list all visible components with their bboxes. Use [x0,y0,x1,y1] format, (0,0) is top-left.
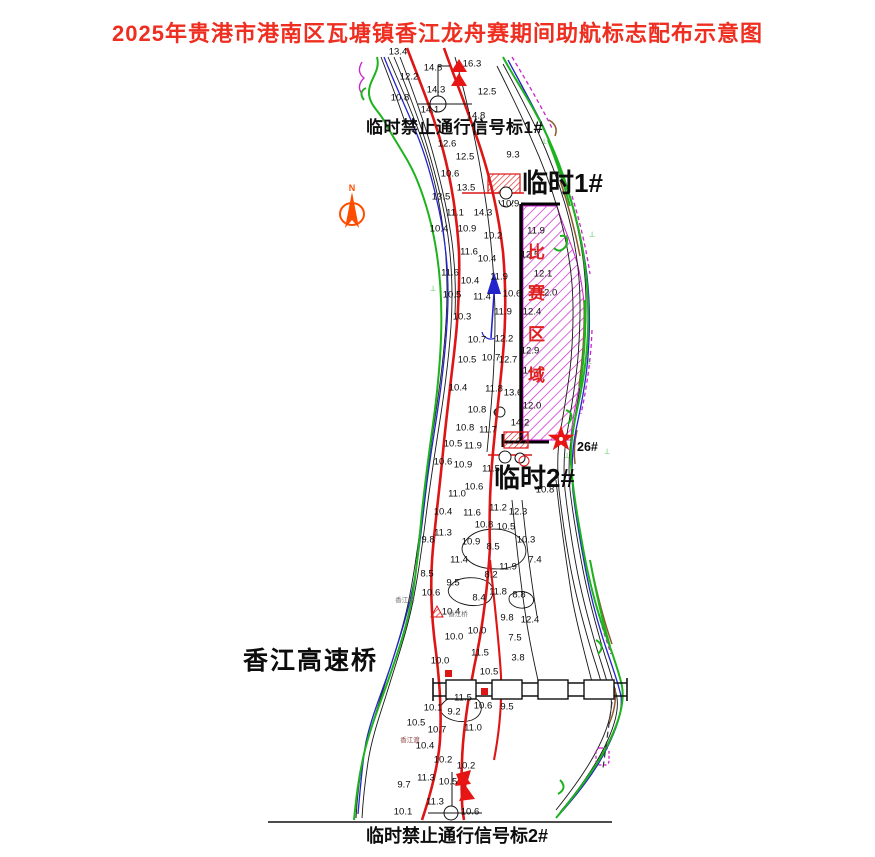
depth-sounding: 3.8 [511,653,524,663]
depth-sounding: 14.3 [427,85,446,95]
depth-sounding: 11.8 [485,384,503,394]
depth-sounding: 10.4 [434,507,453,517]
depth-sounding: 10.6 [461,807,480,817]
depth-sounding: 10.9 [501,199,520,209]
depth-sounding: 10.3 [453,312,472,322]
label-race-area: 比赛区域 [526,243,543,407]
place-label: 香江渡 [400,738,420,745]
depth-sounding: 12.7 [499,355,518,365]
depth-sounding: 10.2 [484,231,503,241]
depth-sounding: 10.9 [462,537,481,547]
depth-sounding: 12.2 [495,334,514,344]
depth-sounding: 10.3 [517,535,536,545]
depth-sounding: 10.6 [441,169,460,179]
depth-sounding: 10.0 [445,632,464,642]
depth-sounding: 10.4 [478,254,497,264]
depth-sounding: 10.1 [394,807,413,817]
depth-sounding: 10.6 [434,457,453,467]
depth-sounding: 13.4 [389,47,408,57]
depth-sounding: 8.5 [420,569,433,579]
depth-sounding: 10.6 [474,701,493,711]
depth-sounding: 8.2 [484,570,497,580]
depth-sounding: 11.8 [489,587,507,597]
depth-sounding: 11.9 [494,307,512,317]
depth-sounding: 14.2 [511,418,530,428]
depth-sounding: 12.3 [509,507,528,517]
depth-sounding: 12.5 [478,87,497,97]
depth-sounding: 11.0 [464,723,482,733]
north-letter: N [349,183,356,193]
depth-sounding: 12.5 [456,152,475,162]
depth-sounding: 10.5 [407,718,426,728]
depth-sounding: 11.4 [473,292,491,302]
depth-sounding: 11.6 [463,508,481,518]
depth-sounding: 14.1 [421,105,440,115]
depth-sounding: 10.0 [431,656,450,666]
depth-sounding: 7.4 [528,555,541,565]
depth-sounding: 8.8 [512,590,525,600]
depth-sounding: 11.7 [479,425,497,435]
depth-sounding: 10.4 [430,224,449,234]
depth-sounding: 10.6 [422,588,441,598]
depth-sounding: 9.8 [421,535,434,545]
depth-sounding: 11.4 [450,555,468,565]
label-mark-26: 26# [577,441,598,454]
label-no-passage-signal-1: 临时禁止通行信号标1# [366,119,543,136]
depth-sounding: 10.2 [434,755,453,765]
label-temporary-2: 临时2# [494,465,575,491]
north-arrow-icon: N [340,183,364,228]
depth-sounding: 16.3 [463,59,482,69]
depth-sounding: 11.3 [434,528,452,538]
vegetation-symbol: ⊥ [564,453,570,460]
depth-sounding: 10.4 [461,276,480,286]
vegetation-symbol: ⊥ [604,449,610,456]
depth-sounding: 10.8 [391,93,410,103]
depth-sounding: 10.5 [458,355,477,365]
depth-sounding: 11.5 [454,693,472,703]
depth-sounding: 9.5 [500,702,513,712]
depth-sounding: 10.8 [475,520,494,530]
depth-sounding: 8.5 [486,542,499,552]
depth-sounding: 10.1 [424,703,443,713]
depth-sounding: 9.3 [506,150,519,160]
label-expressway-bridge: 香江高速桥 [243,649,378,674]
depth-sounding: 9.2 [447,707,460,717]
depth-sounding: 11.1 [446,208,464,218]
depth-sounding: 14.3 [474,208,493,218]
depth-sounding: 12.2 [400,72,419,82]
vegetation-symbol: ⊥ [586,359,592,366]
label-temporary-1: 临时1# [522,170,603,196]
depth-sounding: 10.4 [449,383,468,393]
depth-sounding: 10.6 [503,289,522,299]
depth-sounding: 10.5 [480,667,499,677]
label-no-passage-signal-2: 临时禁止通行信号标2# [366,827,548,845]
depth-sounding: 10.9 [454,460,473,470]
depth-sounding: 14.8 [424,63,443,73]
place-label: 香江桥 [448,612,468,619]
depth-sounding: 11.6 [460,247,478,257]
vegetation-symbol: ⊥ [541,139,547,146]
depth-sounding: 10.8 [468,405,487,415]
depth-sounding: 11.9 [464,441,482,451]
depth-sounding: 11.0 [448,489,466,499]
depth-sounding: 10.0 [468,626,487,636]
depth-sounding: 13.6 [504,388,523,398]
depth-sounding: 9.7 [397,780,410,790]
depth-sounding: 10.6 [465,482,484,492]
depth-sounding: 10.5 [497,522,516,532]
vegetation-symbol: ⊥ [589,232,595,239]
depth-sounding: 11.6 [441,268,459,278]
depth-sounding: 9.5 [446,578,459,588]
depth-sounding: 10.7 [468,335,487,345]
place-label: 香江桥 [395,598,415,605]
depth-sounding: 11.3 [417,773,435,783]
depth-sounding: 13.5 [457,183,476,193]
depth-sounding: 10.5 [439,777,458,787]
depth-sounding: 10.5 [444,439,463,449]
depth-sounding: 10.5 [443,290,462,300]
vegetation-symbol: ⊥ [430,286,436,293]
depth-sounding: 11.9 [490,272,508,282]
depth-sounding: 7.5 [508,633,521,643]
depth-sounding: 13.5 [432,192,451,202]
depth-sounding: 11.9 [527,226,545,236]
depth-sounding: 10.7 [482,353,501,363]
depth-sounding: 12.6 [438,139,457,149]
depth-sounding: 9.8 [500,613,513,623]
depth-sounding: 12.4 [521,615,540,625]
depth-sounding: 11.3 [426,797,444,807]
depth-sounding: 8.4 [472,593,485,603]
chart-canvas: 2025年贵港市港南区瓦塘镇香江龙舟赛期间助航标志配布示意图 [0,0,875,857]
depth-sounding: 11.9 [499,562,517,572]
bridge-pier-marker [445,670,452,677]
depth-sounding: 10.2 [457,761,476,771]
depth-sounding: 10.8 [456,423,475,433]
bridge-pier-marker [481,688,488,695]
depth-sounding: 10.7 [428,725,447,735]
depth-sounding: 11.5 [471,648,489,658]
depth-sounding: 10.9 [458,224,477,234]
depth-sounding: 11.2 [489,503,507,513]
